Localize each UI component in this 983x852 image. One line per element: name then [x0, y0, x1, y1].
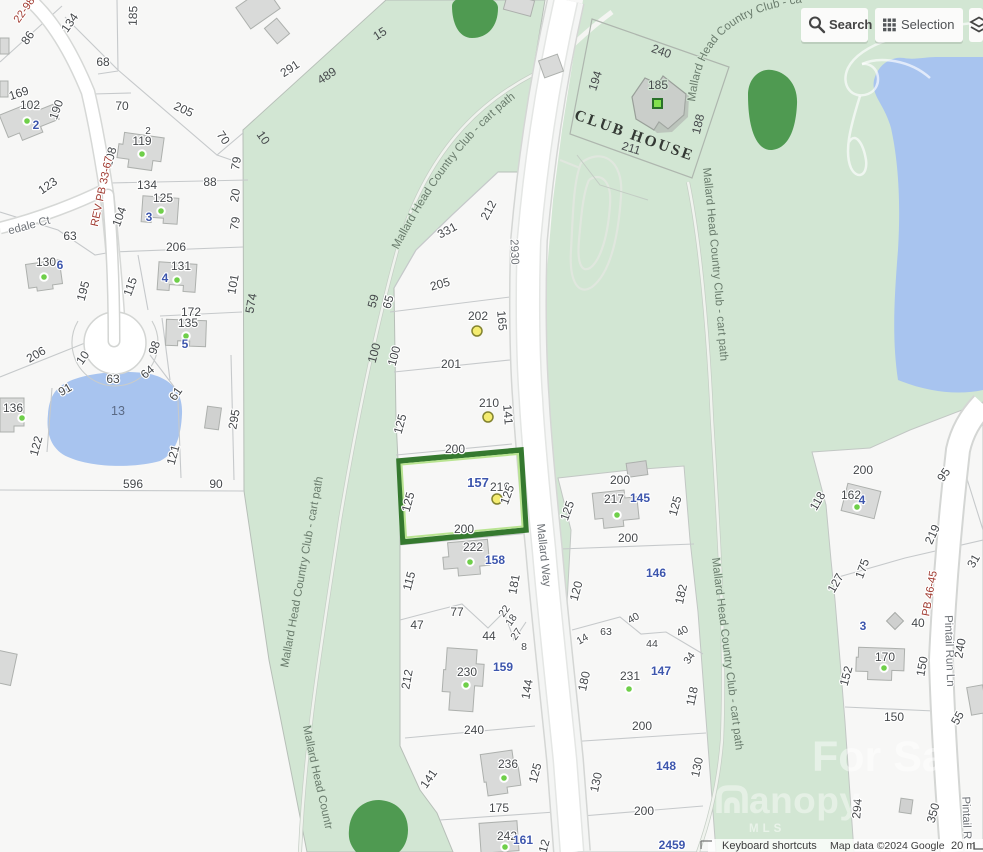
- svg-text:79: 79: [227, 215, 243, 231]
- svg-text:3: 3: [146, 210, 153, 224]
- svg-text:206: 206: [166, 240, 186, 254]
- svg-text:40: 40: [911, 616, 925, 630]
- svg-text:20: 20: [227, 187, 243, 203]
- svg-text:Selection: Selection: [901, 17, 954, 32]
- svg-text:Keyboard shortcuts: Keyboard shortcuts: [722, 840, 817, 852]
- svg-text:217: 217: [604, 492, 624, 506]
- svg-text:Search: Search: [829, 17, 872, 32]
- svg-text:44: 44: [482, 629, 496, 643]
- svg-text:175: 175: [489, 801, 509, 815]
- svg-text:200: 200: [454, 522, 474, 536]
- svg-text:135: 135: [178, 316, 198, 330]
- svg-text:88: 88: [203, 175, 217, 189]
- svg-text:63: 63: [600, 626, 612, 638]
- svg-text:79: 79: [228, 155, 244, 171]
- svg-text:68: 68: [96, 55, 110, 69]
- svg-text:185: 185: [648, 78, 668, 92]
- svg-text:90: 90: [209, 477, 223, 491]
- svg-text:anopy: anopy: [749, 780, 860, 821]
- svg-text:4: 4: [859, 493, 866, 507]
- svg-text:145: 145: [630, 491, 650, 505]
- svg-text:236: 236: [498, 757, 518, 771]
- svg-text:200: 200: [610, 473, 630, 487]
- svg-text:125: 125: [153, 191, 173, 205]
- svg-text:3: 3: [860, 619, 867, 633]
- svg-text:158: 158: [485, 553, 505, 567]
- svg-text:131: 131: [171, 259, 191, 273]
- svg-text:13: 13: [111, 404, 125, 418]
- svg-text:47: 47: [410, 618, 424, 632]
- svg-text:200: 200: [853, 463, 873, 477]
- svg-text:2459: 2459: [659, 838, 686, 852]
- svg-text:170: 170: [875, 650, 895, 664]
- svg-text:210: 210: [479, 396, 499, 410]
- svg-text:157: 157: [467, 475, 489, 490]
- svg-text:2: 2: [145, 126, 151, 137]
- svg-text:200: 200: [445, 442, 465, 456]
- svg-text:8: 8: [521, 641, 527, 653]
- svg-text:202: 202: [468, 309, 488, 323]
- svg-text:222: 222: [463, 540, 483, 554]
- svg-text:146: 146: [646, 566, 666, 580]
- svg-text:159: 159: [493, 660, 513, 674]
- svg-text:148: 148: [656, 759, 676, 773]
- svg-text:185: 185: [126, 5, 141, 26]
- svg-text:136: 136: [3, 401, 23, 415]
- svg-text:200: 200: [632, 719, 652, 733]
- svg-text:161: 161: [513, 833, 533, 847]
- svg-text:6: 6: [57, 258, 64, 272]
- svg-text:201: 201: [441, 357, 461, 371]
- svg-text:130: 130: [36, 255, 56, 269]
- svg-text:Pintail R: Pintail R: [959, 796, 972, 839]
- svg-text:596: 596: [123, 477, 143, 491]
- svg-text:20 m: 20 m: [951, 840, 975, 852]
- svg-text:Map data ©2024 Google: Map data ©2024 Google: [830, 840, 945, 852]
- svg-text:63: 63: [106, 372, 120, 386]
- svg-text:5: 5: [182, 337, 189, 351]
- svg-text:2930: 2930: [508, 239, 521, 265]
- svg-text:200: 200: [618, 531, 638, 545]
- svg-text:4: 4: [162, 271, 169, 285]
- svg-text:77: 77: [450, 605, 464, 619]
- svg-text:70: 70: [115, 99, 129, 113]
- svg-text:44: 44: [646, 638, 658, 650]
- svg-text:231: 231: [620, 669, 640, 683]
- svg-text:150: 150: [884, 710, 904, 724]
- svg-text:165: 165: [494, 310, 510, 331]
- svg-text:For Sa: For Sa: [812, 733, 947, 781]
- svg-text:2: 2: [33, 118, 40, 132]
- svg-text:230: 230: [457, 665, 477, 679]
- svg-text:240: 240: [464, 723, 484, 737]
- svg-text:147: 147: [651, 664, 671, 678]
- svg-text:141: 141: [500, 404, 516, 425]
- svg-text:200: 200: [634, 804, 654, 818]
- svg-text:102: 102: [20, 98, 40, 112]
- svg-text:134: 134: [137, 178, 157, 192]
- svg-text:MLS: MLS: [749, 823, 785, 835]
- svg-text:63: 63: [63, 229, 77, 243]
